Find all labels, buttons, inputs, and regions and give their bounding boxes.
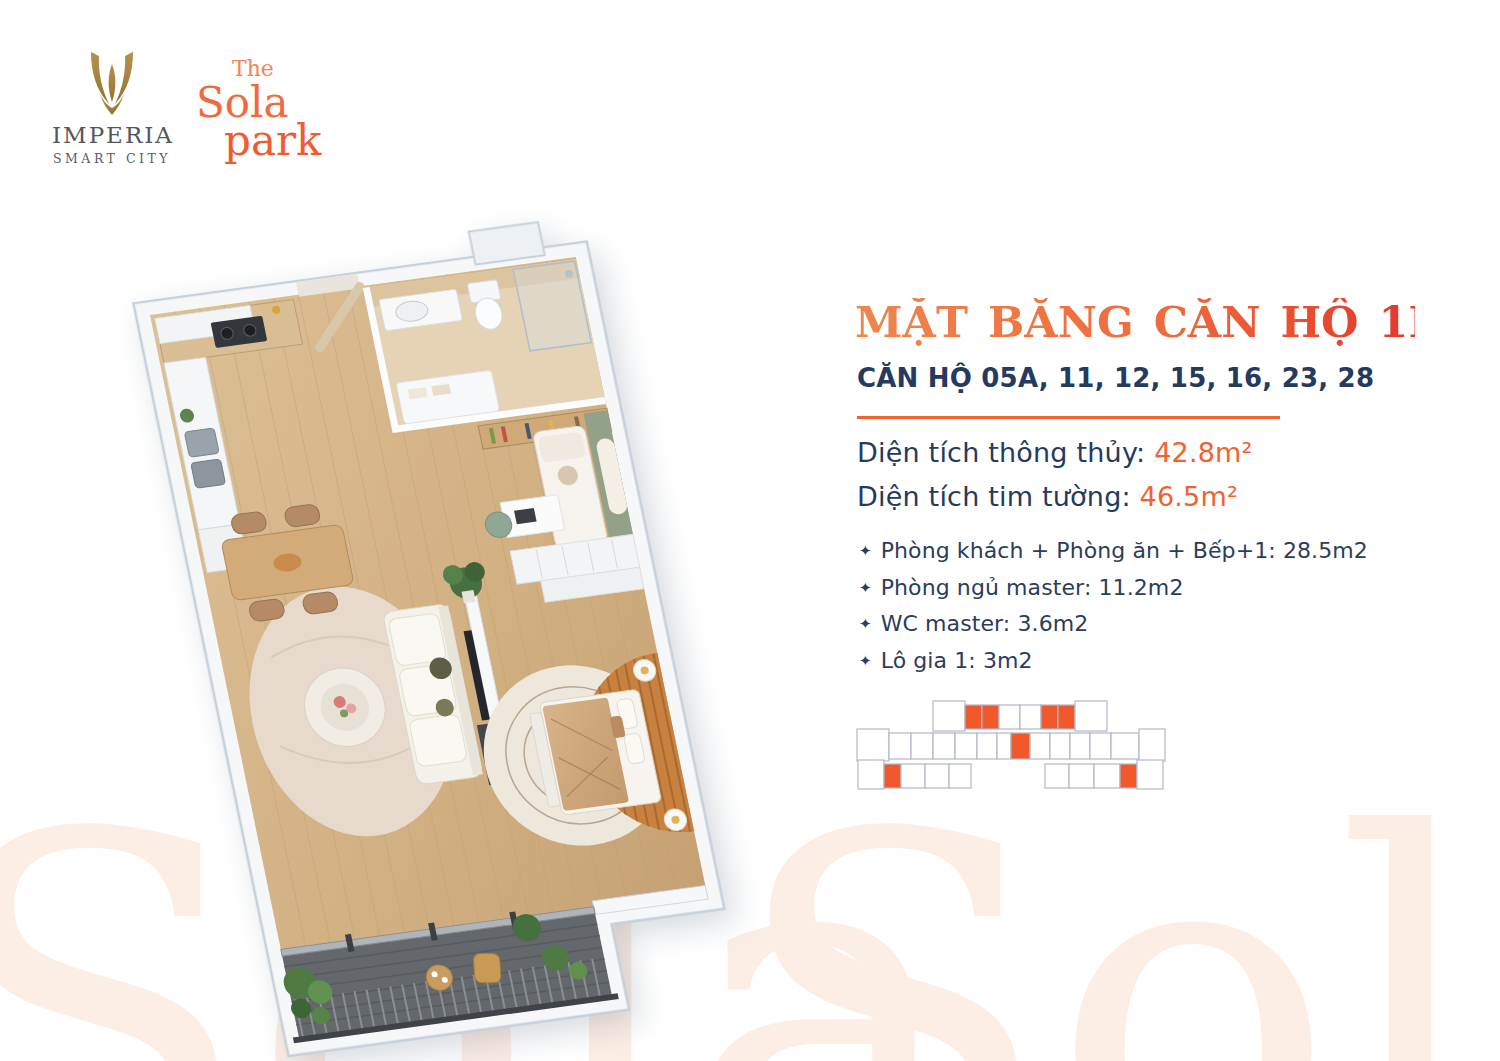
- keyplan-unit-highlighted: [1120, 764, 1137, 788]
- keyplan-unit: [911, 733, 933, 759]
- keyplan-unit: [1045, 764, 1069, 788]
- keyplan-unit: [901, 764, 925, 788]
- unit-numbers-subtitle: CĂN HỘ 05A, 11, 12, 15, 16, 23, 28: [857, 363, 1374, 393]
- room-item-label: WC master: 3.6m2: [881, 611, 1089, 636]
- keyplan-unit-highlighted: [1011, 733, 1030, 759]
- keyplan-unit-highlighted: [1041, 705, 1058, 729]
- keyplan-unit-highlighted: [1058, 705, 1075, 729]
- keyplan-unit: [1111, 733, 1139, 759]
- star-bullet-icon: ✦: [859, 615, 872, 633]
- imperia-tagline: SMART CITY: [52, 151, 172, 166]
- keyplan-unit-highlighted: [982, 705, 999, 729]
- keyplan-unit: [857, 729, 889, 761]
- keyplan-unit-highlighted: [884, 764, 901, 788]
- gross-area-line: Diện tích tim tường: 46.5m²: [857, 481, 1238, 512]
- balcony-chair: [473, 953, 501, 982]
- divider-line: [857, 416, 1280, 419]
- keyplan-unit: [997, 733, 1011, 759]
- keyplan-unit: [949, 764, 971, 788]
- keyplan-unit-highlighted: [965, 705, 982, 729]
- keyplan-unit: [933, 733, 955, 759]
- sola-logo-park: park: [224, 120, 321, 162]
- star-bullet-icon: ✦: [859, 542, 872, 560]
- building-key-plan: [855, 698, 1167, 792]
- keyplan-unit: [1020, 705, 1041, 729]
- keyplan-unit: [1137, 760, 1163, 789]
- keyplan-unit: [858, 760, 884, 789]
- net-area-line: Diện tích thông thủy: 42.8m²: [857, 437, 1253, 468]
- page-title: MẶT BẰNG CĂN HỘ 1PN+: [855, 298, 1415, 347]
- keyplan-unit: [999, 705, 1020, 729]
- list-item: ✦ Phòng khách + Phòng ăn + Bếp+1: 28.5m2: [859, 538, 1368, 575]
- room-list: ✦ Phòng khách + Phòng ăn + Bếp+1: 28.5m2…: [859, 538, 1368, 684]
- star-bullet-icon: ✦: [859, 579, 872, 597]
- room-item-label: Phòng khách + Phòng ăn + Bếp+1: 28.5m2: [881, 538, 1368, 563]
- room-item-label: Phòng ngủ master: 11.2m2: [881, 575, 1184, 600]
- keyplan-unit: [977, 733, 997, 759]
- keyplan-unit: [1069, 764, 1094, 788]
- net-area-label: Diện tích thông thủy:: [857, 437, 1145, 468]
- imperia-logo: IMPERIA SMART CITY: [52, 52, 172, 166]
- laptop: [514, 508, 537, 524]
- list-item: ✦ Phòng ngủ master: 11.2m2: [859, 575, 1368, 612]
- star-bullet-icon: ✦: [859, 652, 872, 670]
- keyplan-unit: [1139, 729, 1165, 761]
- list-item: ✦ WC master: 3.6m2: [859, 611, 1368, 648]
- bathroom: [366, 259, 605, 429]
- sink: [184, 428, 219, 457]
- keyplan-unit: [1050, 733, 1070, 759]
- list-item: ✦ Lô gia 1: 3m2: [859, 648, 1368, 685]
- keyplan-unit: [1075, 701, 1107, 731]
- gross-area-value: 46.5m²: [1140, 481, 1238, 512]
- keyplan-unit: [1090, 733, 1111, 759]
- keyplan-unit: [933, 701, 965, 731]
- net-area-value: 42.8m²: [1154, 437, 1252, 468]
- keyplan-unit: [889, 733, 911, 759]
- keyplan-unit: [1030, 733, 1050, 759]
- sola-logo-the: The: [232, 58, 321, 80]
- gross-area-label: Diện tích tim tường:: [857, 481, 1131, 512]
- imperia-wordmark: IMPERIA: [52, 122, 172, 148]
- keyplan-unit: [1070, 733, 1090, 759]
- poster-page: { "brand": { "imperia_name": "IMPERIA", …: [0, 0, 1500, 1061]
- keyplan-unit: [955, 733, 977, 759]
- imperia-tulip-icon: [83, 52, 141, 116]
- keyplan-unit: [925, 764, 949, 788]
- sola-park-logo: The Sola park: [196, 58, 321, 162]
- keyplan-unit: [1094, 764, 1120, 788]
- room-item-label: Lô gia 1: 3m2: [881, 648, 1033, 673]
